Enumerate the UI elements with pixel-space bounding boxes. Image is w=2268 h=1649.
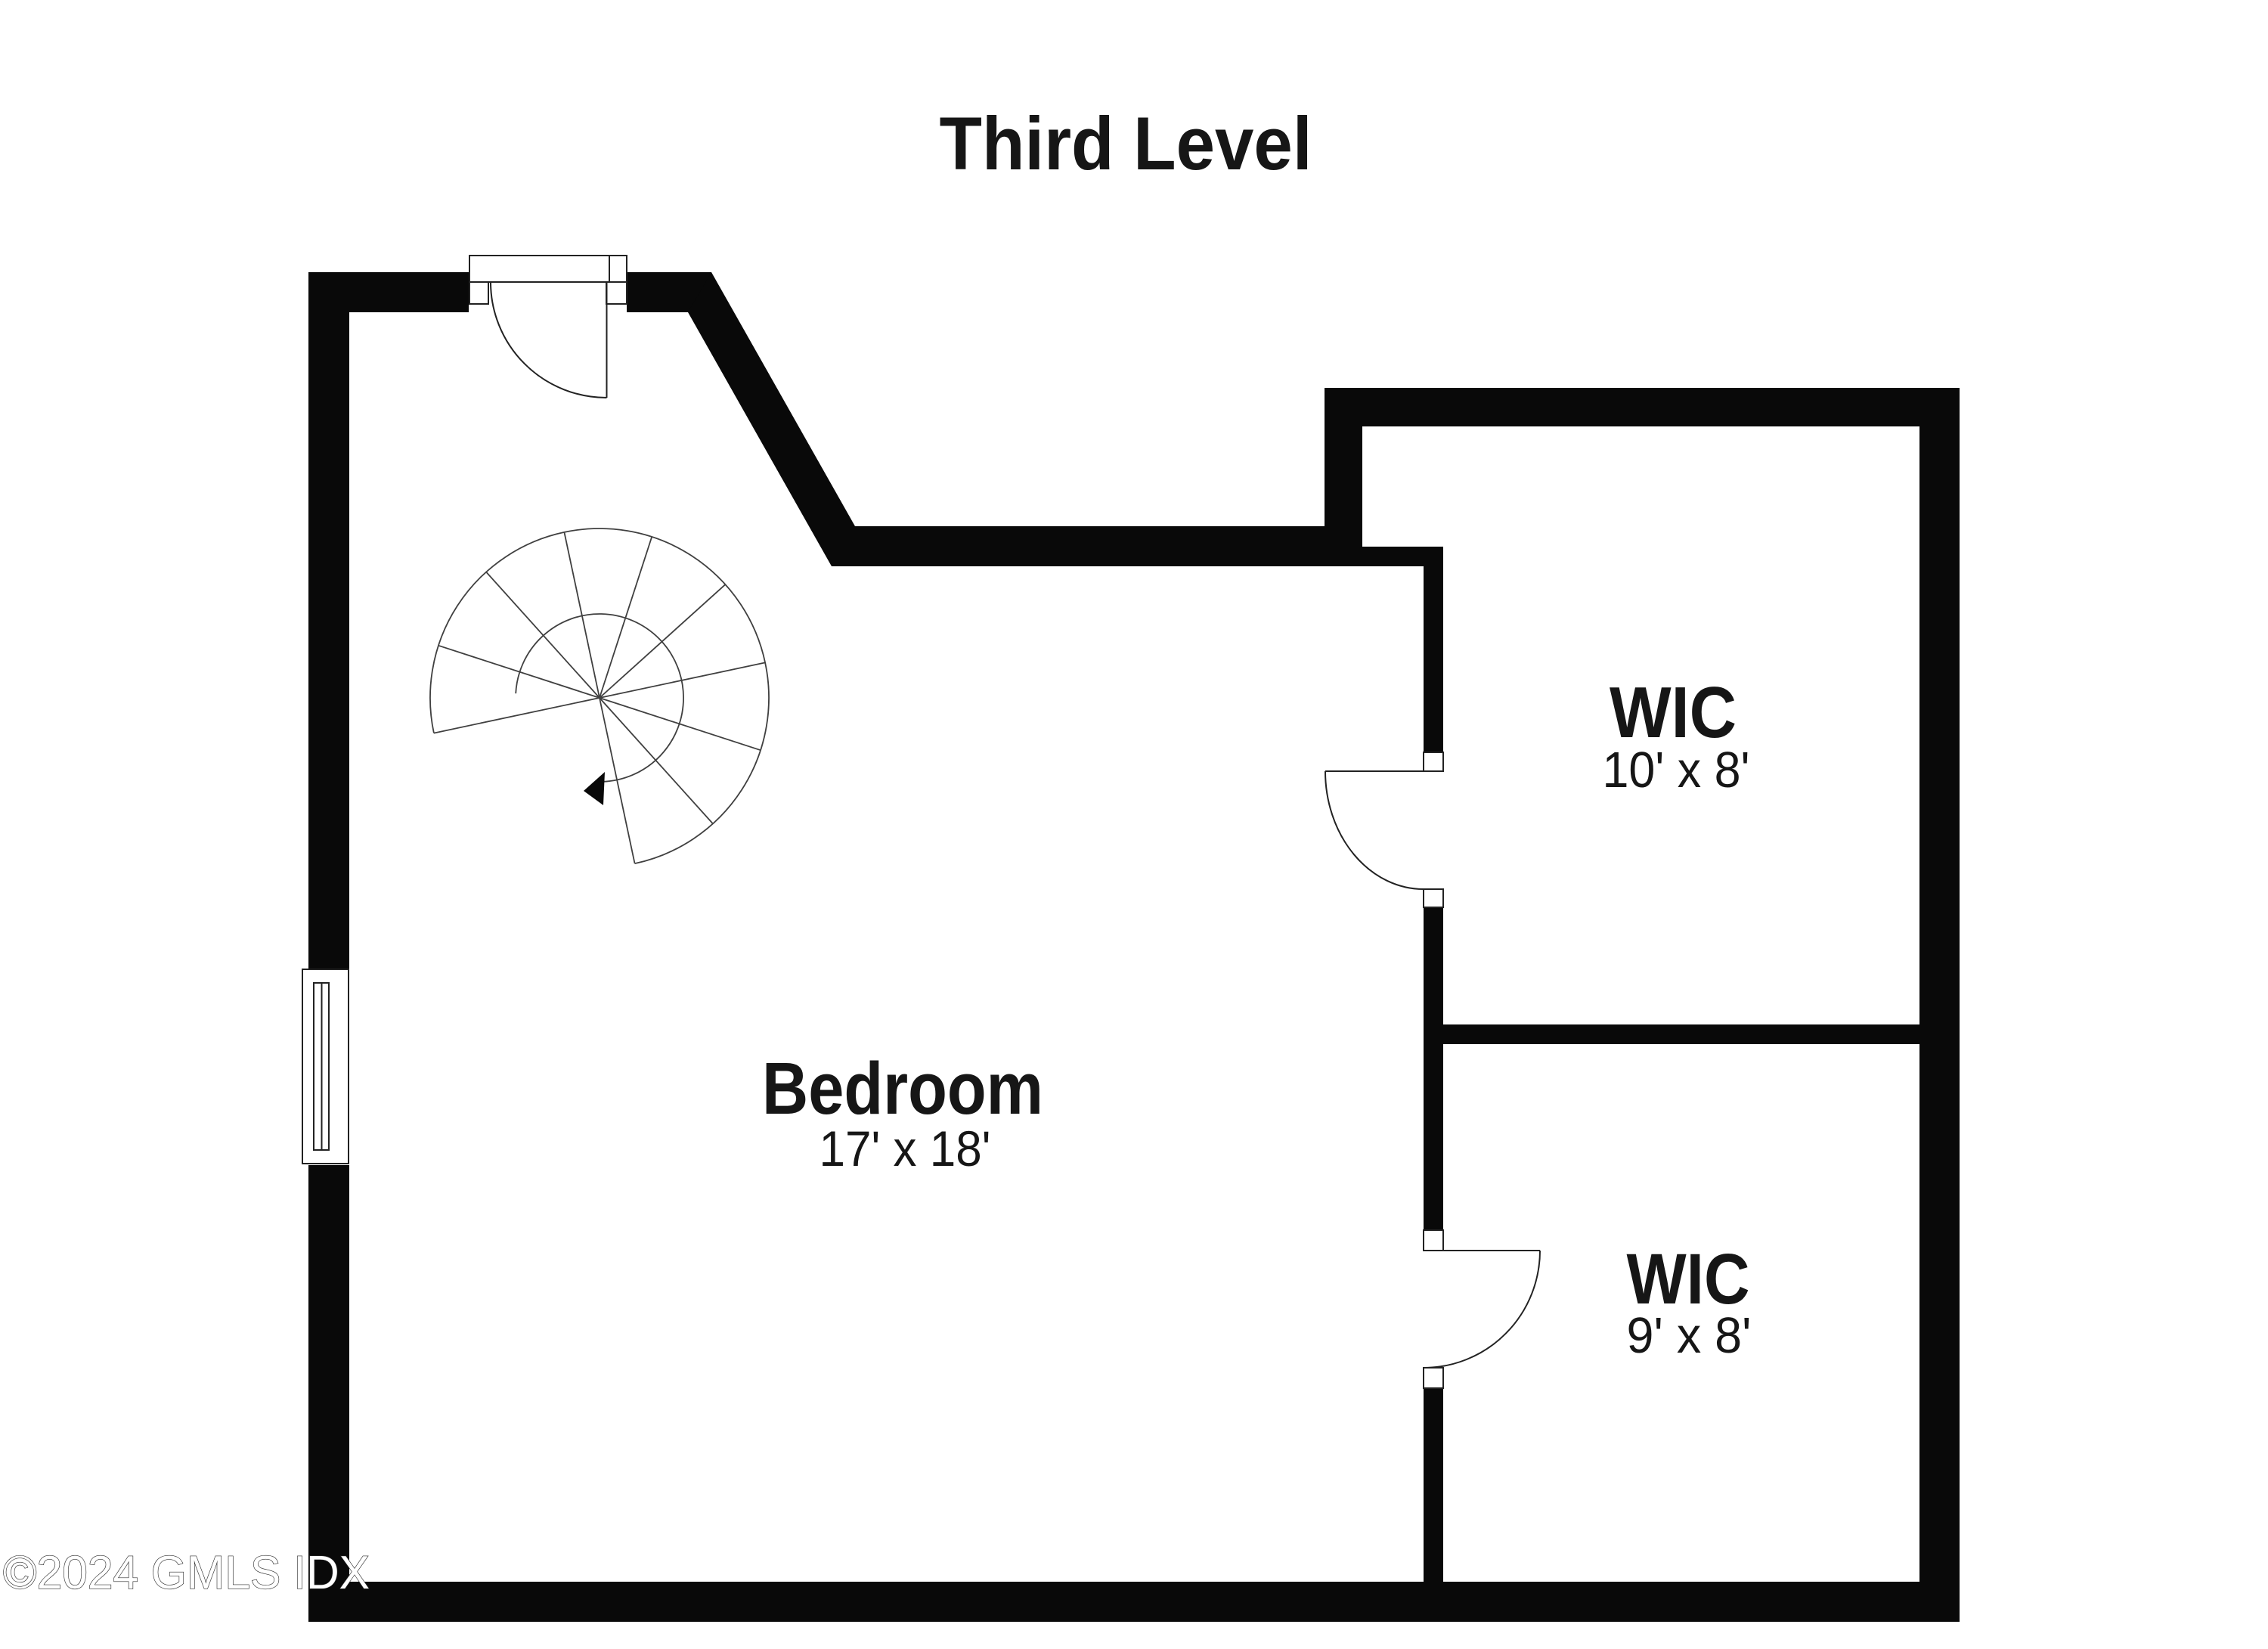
svg-text:10' x 8': 10' x 8' bbox=[1603, 742, 1750, 798]
svg-text:17' x 18': 17' x 18' bbox=[820, 1121, 991, 1176]
svg-text:Bedroom: Bedroom bbox=[762, 1047, 1043, 1130]
svg-text:©2024 GMLS IDX: ©2024 GMLS IDX bbox=[3, 1547, 370, 1599]
svg-text:Third Level: Third Level bbox=[940, 101, 1312, 185]
svg-text:WIC: WIC bbox=[1610, 672, 1737, 753]
svg-text:9' x 8': 9' x 8' bbox=[1627, 1307, 1752, 1364]
